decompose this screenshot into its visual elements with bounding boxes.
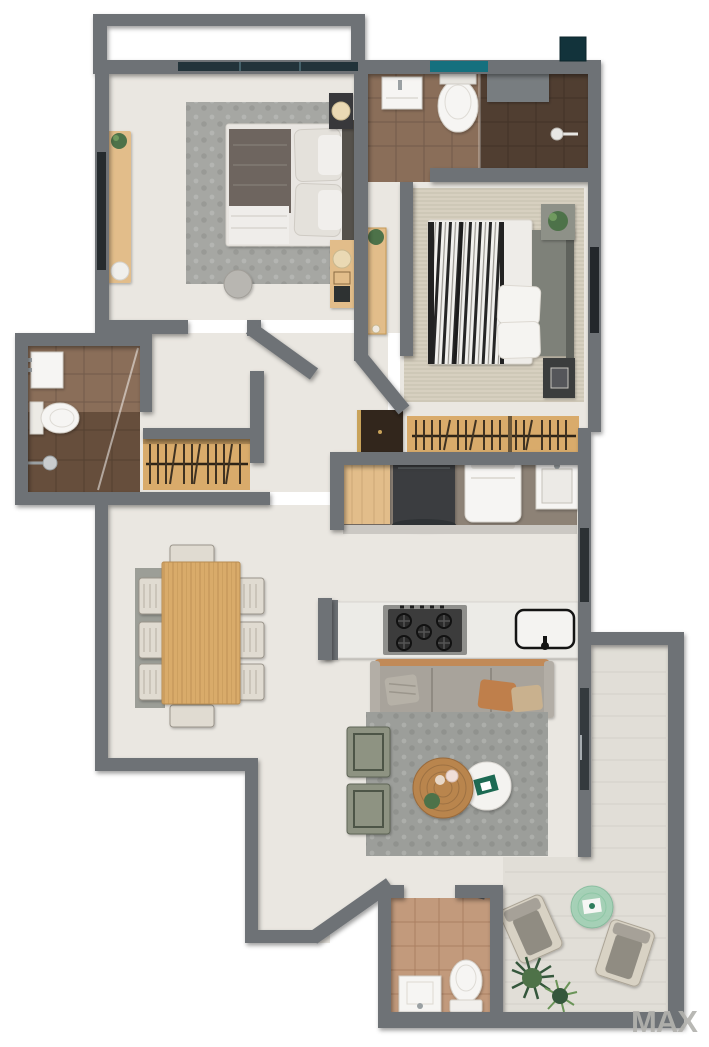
wall-segment [330, 452, 344, 530]
entry-cabinet [357, 410, 403, 455]
ac-unit [560, 37, 586, 61]
bedroom1-dresser [330, 240, 354, 308]
wall-segment [578, 632, 676, 645]
desk-stool [111, 262, 129, 280]
bedroom1-nightstand [329, 93, 353, 129]
wall-segment [490, 885, 503, 1025]
refrigerator [392, 463, 456, 531]
throw-pillow [511, 684, 543, 712]
wood-counter [344, 464, 390, 524]
washing-machine [465, 458, 521, 522]
wall-segment [400, 182, 413, 356]
wall-segment [245, 758, 258, 943]
shower-partition [487, 74, 549, 102]
floor-plan-canvas: MAX [0, 0, 709, 1047]
table-lamp [332, 102, 350, 120]
wall-segment [343, 452, 590, 465]
laundry-sink [536, 463, 578, 509]
bedroom2-double-bed [428, 220, 574, 364]
wall-segment [95, 505, 108, 771]
wall-segment [354, 60, 368, 333]
pillow [497, 321, 540, 358]
wall-segment [15, 333, 28, 505]
wall-segment [15, 333, 152, 346]
throw-pillow [384, 674, 420, 706]
wall-segment [430, 168, 588, 182]
wall-segment [95, 758, 258, 771]
bathroom1-vanity-sink [382, 77, 422, 109]
hall-wardrobe-closet [143, 438, 250, 490]
table-plant [424, 793, 440, 809]
wall-segment [378, 885, 404, 898]
duvet [229, 129, 291, 213]
wall-segment [95, 320, 188, 334]
hall-console-table [367, 228, 386, 334]
throw-pillow [477, 679, 516, 712]
bedroom1-double-bed [226, 120, 354, 250]
wall-segment [143, 428, 253, 439]
bedroom2-nightstand-north [541, 204, 575, 240]
bedroom2-nightstand-south [543, 358, 575, 398]
headboard [342, 120, 354, 250]
sofa [370, 659, 554, 718]
wall-segment [15, 492, 270, 505]
cup [446, 770, 458, 782]
desk-plant [111, 133, 127, 149]
throw-blanket [229, 206, 289, 244]
wall-segment [93, 14, 365, 26]
dining-table [162, 562, 240, 704]
bedroom2-east-window [590, 247, 599, 333]
table-lamp [333, 250, 351, 268]
glass-table [571, 886, 613, 928]
bathroom1-teal-window [430, 61, 488, 72]
wall-segment [668, 632, 684, 1028]
wall-segment [318, 598, 332, 660]
wall-segment [378, 885, 391, 1025]
counter-edge [343, 525, 577, 534]
ottoman [347, 784, 390, 834]
wall-segment [250, 371, 264, 463]
kitchen-sink [516, 610, 574, 650]
wall-segment [140, 346, 152, 412]
bedroom1-console-desk [107, 131, 131, 283]
wall-segment [588, 60, 601, 432]
bedroom1-west-window [97, 152, 106, 270]
bathroom2-vanity-sink [27, 352, 63, 388]
bedroom2-open-wardrobe [407, 416, 579, 454]
living-room [347, 659, 554, 856]
ottoman [347, 727, 390, 777]
console-plant [368, 229, 384, 245]
striped-duvet [430, 222, 504, 364]
gas-hob [383, 605, 467, 655]
bathroom2-toilet [30, 402, 79, 434]
wall-segment [245, 930, 317, 943]
bedroom1-north-window [178, 62, 358, 71]
watermark-logo: MAX [631, 1004, 698, 1039]
bathroom3-toilet [450, 960, 482, 1012]
kitchen-east-window [580, 528, 589, 602]
bedroom1-pouf [224, 270, 252, 298]
pillow [497, 285, 541, 325]
coffee-table [413, 758, 473, 818]
bathroom1-toilet [438, 72, 478, 132]
bathroom3-vanity-sink [399, 976, 441, 1012]
